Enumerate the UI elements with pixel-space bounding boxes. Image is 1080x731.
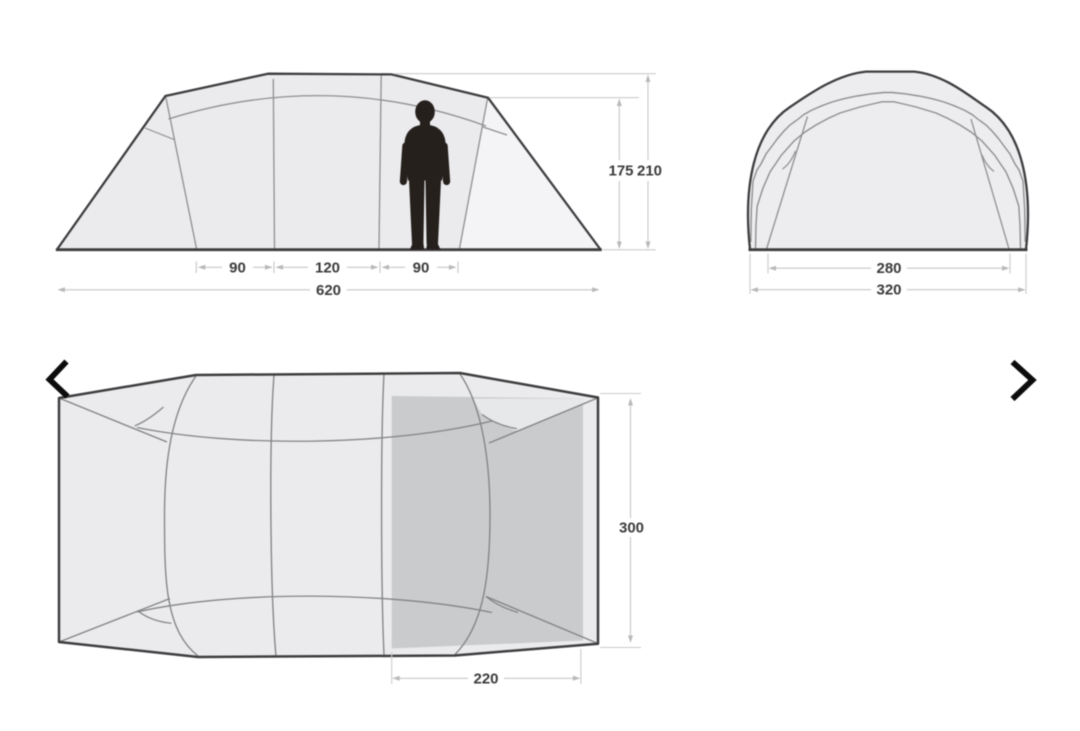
- svg-text:90: 90: [229, 259, 246, 276]
- svg-text:280: 280: [876, 260, 901, 277]
- svg-text:120: 120: [315, 259, 340, 276]
- svg-text:320: 320: [876, 282, 901, 299]
- svg-text:620: 620: [316, 282, 341, 299]
- svg-text:300: 300: [619, 520, 644, 537]
- svg-text:220: 220: [473, 670, 498, 687]
- svg-text:175: 175: [608, 163, 633, 180]
- svg-text:210: 210: [637, 163, 662, 180]
- svg-text:90: 90: [413, 259, 430, 276]
